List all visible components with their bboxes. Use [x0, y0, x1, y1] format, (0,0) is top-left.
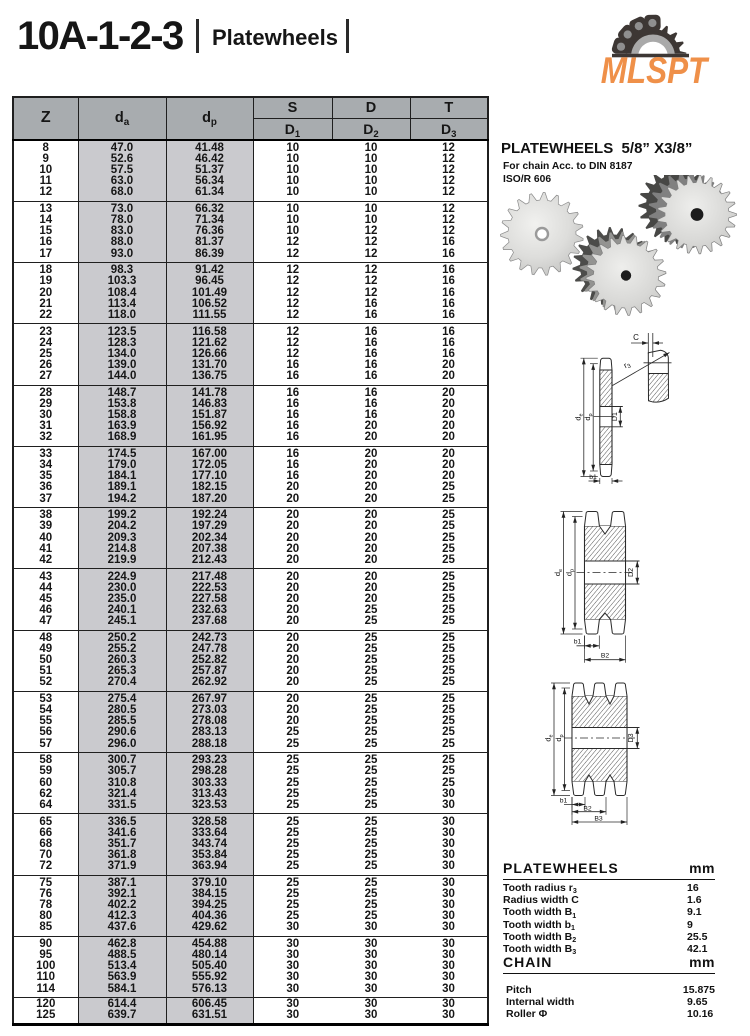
- svg-text:B2: B2: [601, 653, 610, 660]
- svg-text:dp: dp: [565, 569, 576, 576]
- svg-text:dp: dp: [554, 734, 565, 741]
- svg-text:D2: D2: [628, 568, 635, 577]
- svg-text:D1: D1: [612, 412, 619, 421]
- svg-text:B3: B3: [594, 815, 603, 822]
- svg-text:de: de: [553, 569, 564, 576]
- svg-text:b1: b1: [589, 474, 597, 481]
- svg-text:B2: B2: [583, 805, 592, 812]
- svg-text:r3: r3: [622, 359, 633, 371]
- svg-text:de: de: [544, 734, 555, 741]
- svg-text:dp: dp: [583, 413, 594, 420]
- svg-text:b1: b1: [560, 797, 568, 804]
- svg-text:C: C: [633, 333, 639, 342]
- svg-text:MLSPT: MLSPT: [601, 51, 710, 90]
- svg-text:b1: b1: [574, 639, 582, 646]
- svg-text:D3: D3: [628, 733, 635, 742]
